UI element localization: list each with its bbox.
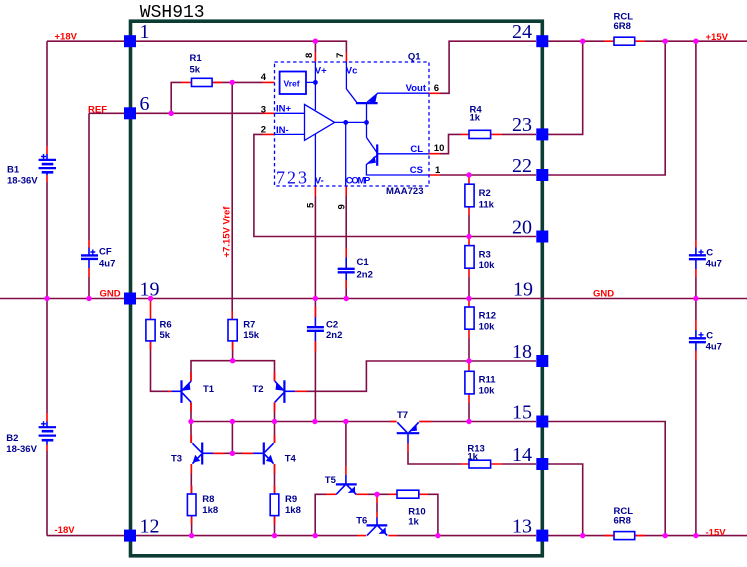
- svg-text:14: 14: [512, 444, 532, 466]
- svg-text:9: 9: [337, 204, 348, 209]
- svg-text:T1: T1: [203, 384, 215, 395]
- svg-text:R6: R6: [160, 320, 172, 331]
- svg-text:B1: B1: [7, 164, 20, 175]
- svg-text:IN+: IN+: [276, 104, 292, 115]
- svg-text:C2: C2: [326, 319, 338, 330]
- svg-text:IN-: IN-: [276, 125, 289, 136]
- svg-text:13: 13: [512, 515, 532, 537]
- svg-text:6: 6: [140, 93, 150, 115]
- svg-text:10k: 10k: [479, 386, 496, 397]
- svg-text:2n2: 2n2: [357, 270, 373, 281]
- svg-text:6: 6: [434, 83, 439, 94]
- svg-text:19: 19: [140, 278, 160, 300]
- svg-text:R1: R1: [190, 53, 203, 64]
- svg-text:CF: CF: [99, 247, 112, 258]
- svg-text:5k: 5k: [190, 65, 201, 76]
- svg-text:4u7: 4u7: [706, 259, 722, 270]
- svg-text:18-36V: 18-36V: [6, 444, 37, 455]
- svg-text:COMP: COMP: [346, 176, 371, 187]
- svg-text:R11: R11: [479, 375, 497, 386]
- svg-text:15: 15: [512, 401, 532, 423]
- svg-text:10k: 10k: [479, 260, 496, 271]
- svg-text:6R8: 6R8: [614, 21, 631, 32]
- svg-text:1: 1: [140, 21, 150, 43]
- svg-text:2n2: 2n2: [326, 330, 342, 341]
- svg-text:R7: R7: [243, 320, 255, 331]
- svg-text:V+: V+: [315, 65, 327, 76]
- svg-text:CL: CL: [410, 144, 423, 155]
- svg-text:WSH913: WSH913: [140, 3, 205, 23]
- svg-text:723: 723: [276, 168, 309, 188]
- svg-text:18: 18: [512, 341, 532, 363]
- svg-text:CS: CS: [410, 165, 423, 176]
- svg-text:R12: R12: [479, 311, 496, 322]
- svg-text:12: 12: [140, 515, 160, 537]
- svg-text:+7.15V Vref: +7.15V Vref: [222, 206, 233, 258]
- svg-text:Vc: Vc: [346, 65, 358, 76]
- svg-text:-18V: -18V: [55, 525, 76, 536]
- svg-text:7: 7: [335, 53, 346, 58]
- svg-text:1k: 1k: [408, 516, 419, 527]
- svg-text:R9: R9: [285, 494, 297, 505]
- svg-text:R3: R3: [479, 249, 491, 260]
- svg-text:MAA723: MAA723: [386, 186, 424, 197]
- svg-text:3: 3: [261, 105, 266, 116]
- svg-text:24: 24: [512, 21, 532, 43]
- svg-text:Vref: Vref: [284, 79, 300, 89]
- svg-text:1k8: 1k8: [202, 505, 218, 516]
- svg-text:5: 5: [306, 202, 317, 208]
- svg-text:23: 23: [512, 114, 532, 136]
- svg-text:15k: 15k: [243, 330, 260, 341]
- svg-text:20: 20: [512, 216, 532, 238]
- svg-text:T7: T7: [397, 410, 408, 421]
- svg-text:REF: REF: [88, 104, 107, 115]
- svg-text:Vout: Vout: [406, 83, 427, 94]
- svg-text:18-36V: 18-36V: [7, 176, 38, 187]
- svg-text:4u7: 4u7: [706, 341, 722, 352]
- svg-text:11k: 11k: [479, 199, 495, 210]
- svg-text:C1: C1: [357, 257, 370, 268]
- svg-text:5k: 5k: [160, 330, 171, 341]
- svg-text:4u7: 4u7: [99, 258, 115, 269]
- svg-text:T5: T5: [325, 475, 337, 486]
- svg-text:2: 2: [261, 124, 266, 135]
- svg-text:6R8: 6R8: [614, 516, 631, 527]
- svg-text:R2: R2: [479, 188, 491, 199]
- svg-text:GND: GND: [100, 288, 121, 299]
- svg-text:10: 10: [434, 143, 445, 154]
- svg-text:T3: T3: [171, 453, 182, 464]
- svg-text:4: 4: [261, 72, 267, 83]
- svg-text:-15V: -15V: [706, 527, 727, 538]
- svg-text:+18V: +18V: [55, 31, 78, 42]
- svg-text:1k: 1k: [467, 452, 478, 463]
- svg-text:B2: B2: [6, 433, 18, 444]
- svg-text:T2: T2: [253, 384, 264, 395]
- svg-text:C: C: [706, 247, 713, 258]
- svg-text:V-: V-: [315, 176, 324, 187]
- svg-text:T4: T4: [285, 453, 297, 464]
- svg-text:+15V: +15V: [706, 32, 729, 43]
- svg-text:19: 19: [513, 278, 533, 300]
- svg-text:Q1: Q1: [408, 51, 421, 62]
- svg-text:R8: R8: [202, 494, 214, 505]
- svg-text:8: 8: [304, 53, 315, 58]
- svg-text:C: C: [706, 330, 713, 341]
- svg-text:1: 1: [435, 165, 441, 176]
- svg-text:1k: 1k: [470, 113, 481, 124]
- svg-text:GND: GND: [593, 288, 614, 299]
- svg-text:22: 22: [512, 155, 532, 177]
- svg-text:1k8: 1k8: [285, 505, 301, 516]
- svg-text:10k: 10k: [479, 322, 496, 333]
- svg-text:T6: T6: [356, 516, 367, 527]
